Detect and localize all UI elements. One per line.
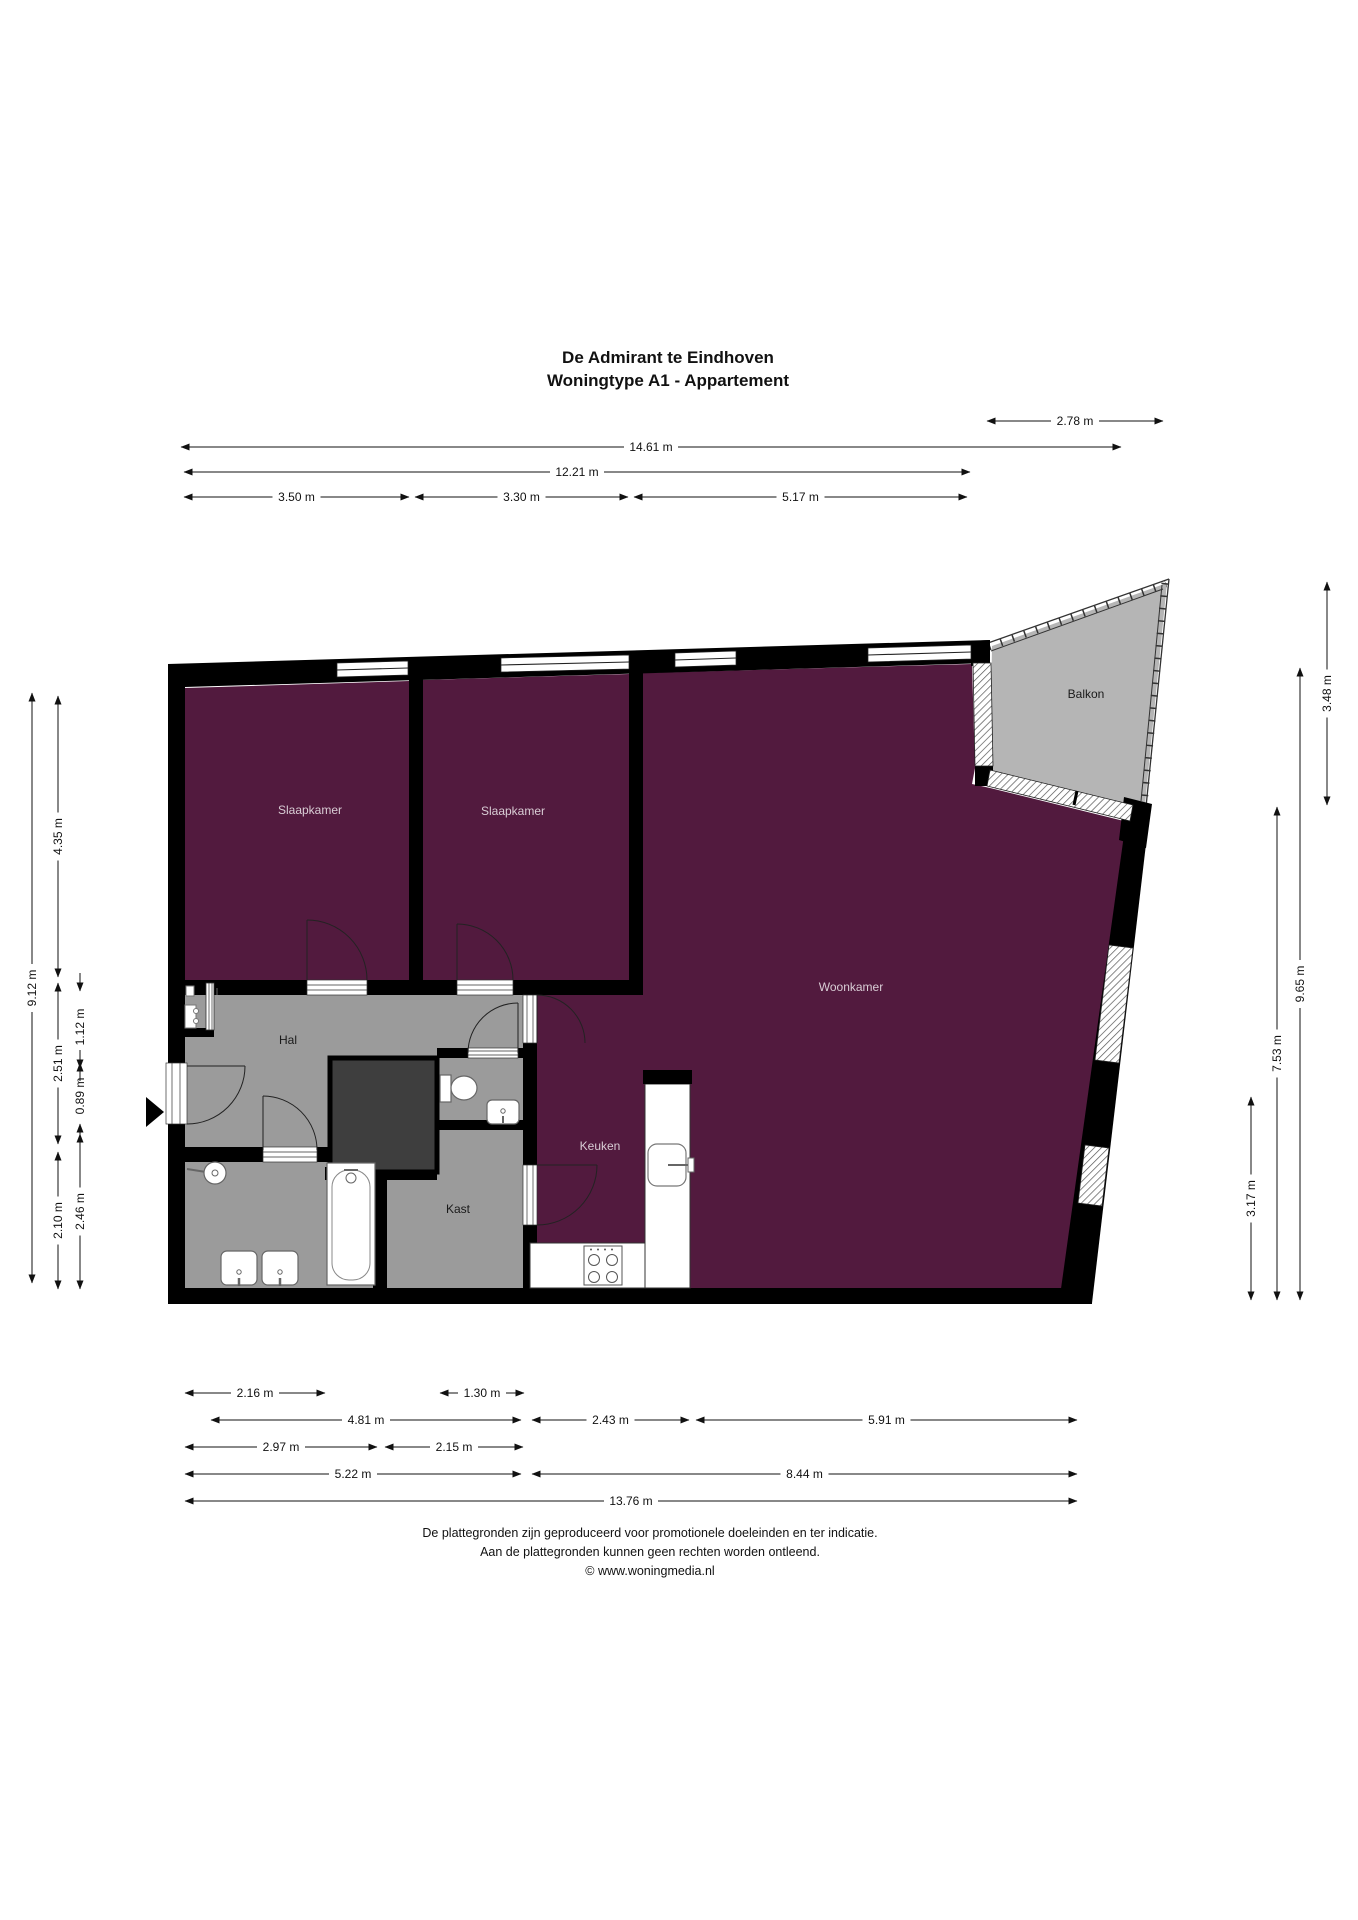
dimension-label: 4.81 m — [348, 1413, 385, 1427]
dimension-top: 5.17 m — [634, 490, 967, 504]
dimension-label: 5.17 m — [782, 490, 819, 504]
kitchen-counter — [530, 1243, 645, 1288]
kitchen-island — [643, 1070, 694, 1288]
dimension-label: 4.35 m — [51, 818, 65, 855]
dimension-right: 3.17 m — [1244, 1097, 1258, 1300]
entrance-arrow-icon — [146, 1097, 164, 1127]
dimension-bottom: 4.81 m — [211, 1413, 521, 1427]
meter-box-icon — [185, 1005, 196, 1028]
dimension-bottom: 1.30 m — [440, 1386, 524, 1400]
dimension-right: 7.53 m — [1270, 807, 1284, 1300]
dimension-left: 9.12 m — [25, 693, 39, 1283]
dimension-left: 0.89 m — [73, 1050, 87, 1142]
dimension-top: 3.50 m — [184, 490, 409, 504]
footer-line-1: De plattegronden zijn geproduceerd voor … — [422, 1526, 877, 1540]
room-label-slaapkamer-0: Slaapkamer — [278, 803, 342, 817]
room-label-balkon-6: Balkon — [1068, 687, 1105, 701]
window-icon — [973, 663, 993, 766]
dimension-label: 13.76 m — [609, 1494, 652, 1508]
dimension-label: 2.46 m — [73, 1193, 87, 1230]
dimension-right: 3.48 m — [1320, 582, 1334, 805]
window-icon — [501, 655, 629, 672]
dimension-bottom: 2.15 m — [385, 1440, 523, 1454]
toilet-icon — [440, 1075, 477, 1102]
washbasin-icon — [262, 1251, 298, 1286]
dimension-label: 2.15 m — [436, 1440, 473, 1454]
stove-icon — [584, 1246, 622, 1285]
dimension-left: 2.51 m — [51, 983, 65, 1144]
window-icon — [675, 651, 736, 667]
floor-plan: SlaapkamerSlaapkamerWoonkamerKeukenHalKa… — [0, 0, 1358, 1920]
dimension-bottom: 2.16 m — [185, 1386, 325, 1400]
dimension-top: 12.21 m — [184, 465, 970, 479]
dimension-label: 1.12 m — [73, 1009, 87, 1046]
dimension-label: 2.97 m — [263, 1440, 300, 1454]
dimension-label: 5.22 m — [335, 1467, 372, 1481]
dimension-label: 9.65 m — [1293, 966, 1307, 1003]
washbasin-icon — [221, 1251, 257, 1286]
window-icon — [337, 661, 408, 677]
dimension-label: 0.89 m — [73, 1078, 87, 1115]
dimension-left: 2.46 m — [73, 1134, 87, 1289]
bathtub-icon — [327, 1163, 375, 1285]
dimension-right: 9.65 m — [1293, 668, 1307, 1300]
room-label-keuken-3: Keuken — [580, 1139, 621, 1153]
dimension-label: 14.61 m — [629, 440, 672, 454]
dimension-label: 1.30 m — [464, 1386, 501, 1400]
room-label-slaapkamer-1: Slaapkamer — [481, 804, 545, 818]
dimension-label: 3.30 m — [503, 490, 540, 504]
dimension-bottom: 5.22 m — [185, 1467, 521, 1481]
footer-line-2: Aan de plattegronden kunnen geen rechten… — [480, 1545, 820, 1559]
room-label-hal-4: Hal — [279, 1033, 297, 1047]
shaft — [330, 1058, 437, 1172]
dimension-label: 8.44 m — [786, 1467, 823, 1481]
bedroom2-floor — [423, 674, 629, 980]
dimension-bottom: 13.76 m — [185, 1494, 1077, 1508]
dimension-label: 2.10 m — [51, 1202, 65, 1239]
dimension-bottom: 5.91 m — [696, 1413, 1077, 1427]
dimension-top: 3.30 m — [415, 490, 628, 504]
dimension-label: 2.51 m — [51, 1045, 65, 1082]
dimension-top: 14.61 m — [181, 440, 1121, 454]
dimension-bottom: 8.44 m — [532, 1467, 1077, 1481]
dimension-left: 4.35 m — [51, 696, 65, 977]
dimension-label: 12.21 m — [555, 465, 598, 479]
dimension-label: 2.78 m — [1057, 414, 1094, 428]
bedroom1-floor — [185, 681, 409, 980]
toilet-washbasin-icon — [487, 1100, 519, 1124]
dimension-label: 3.50 m — [278, 490, 315, 504]
dimension-top: 2.78 m — [987, 414, 1163, 428]
room-label-woonkamer-2: Woonkamer — [819, 980, 883, 994]
room-label-kast-5: Kast — [446, 1202, 471, 1216]
footer-line-3: © www.woningmedia.nl — [585, 1564, 714, 1578]
dimension-label: 3.17 m — [1244, 1180, 1258, 1217]
dimension-label: 9.12 m — [25, 970, 39, 1007]
dimension-label: 7.53 m — [1270, 1035, 1284, 1072]
dimension-bottom: 2.43 m — [532, 1413, 689, 1427]
window-icon — [868, 645, 971, 662]
dimension-left: 2.10 m — [51, 1152, 65, 1289]
dimension-bottom: 2.97 m — [185, 1440, 377, 1454]
dimension-label: 2.16 m — [237, 1386, 274, 1400]
dimension-label: 2.43 m — [592, 1413, 629, 1427]
footer: De plattegronden zijn geproduceerd voor … — [422, 1526, 877, 1578]
dimension-label: 5.91 m — [868, 1413, 905, 1427]
dimension-label: 3.48 m — [1320, 675, 1334, 712]
